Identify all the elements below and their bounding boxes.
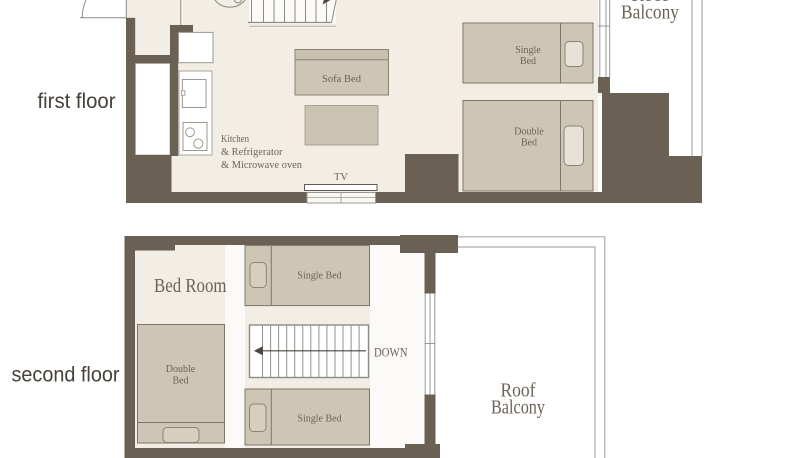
svg-text:DOWN: DOWN	[374, 345, 408, 359]
svg-text:TV: TV	[334, 172, 348, 183]
svg-text:Double: Double	[514, 127, 544, 138]
svg-text:Sofa Bed: Sofa Bed	[322, 74, 361, 85]
svg-text:Double: Double	[166, 364, 196, 375]
svg-text:Bed Room: Bed Room	[154, 276, 227, 297]
svg-text:Single Bed: Single Bed	[297, 414, 341, 425]
svg-text:Kitchen: Kitchen	[221, 134, 250, 145]
svg-text:first floor: first floor	[38, 89, 116, 113]
svg-text:Bed: Bed	[521, 138, 537, 149]
svg-text:Bed: Bed	[520, 56, 536, 67]
svg-text:Single Bed: Single Bed	[297, 271, 341, 282]
svg-text:Bed: Bed	[172, 376, 188, 387]
svg-text:& Microwave oven: & Microwave oven	[221, 160, 303, 171]
svg-text:Single: Single	[515, 45, 541, 56]
svg-text:Balcony: Balcony	[491, 397, 545, 418]
svg-text:& Refrigerator: & Refrigerator	[221, 147, 283, 158]
svg-text:Balcony: Balcony	[621, 2, 679, 23]
svg-text:second floor: second floor	[12, 362, 120, 386]
